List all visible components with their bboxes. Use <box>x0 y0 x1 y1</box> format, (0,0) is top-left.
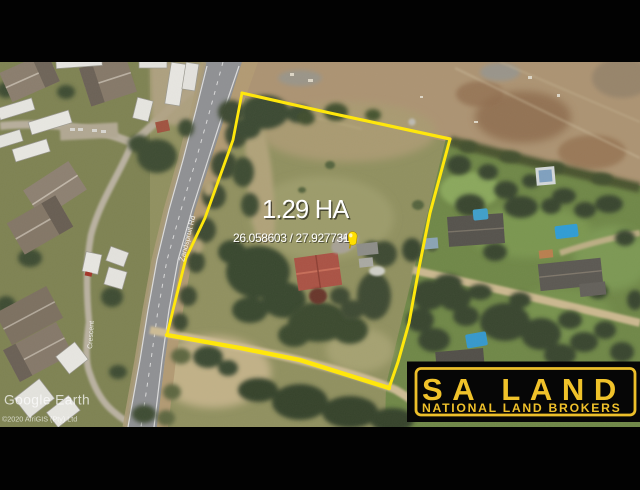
svg-text:Google Earth: Google Earth <box>4 393 90 408</box>
svg-text:©2020 AfriGIS (Pty) Ltd: ©2020 AfriGIS (Pty) Ltd <box>2 415 77 424</box>
svg-text:1.29 HA: 1.29 HA <box>262 196 349 224</box>
svg-text:26.058603 / 27.927731: 26.058603 / 27.927731 <box>233 231 350 245</box>
svg-text:NATIONAL LAND BROKERS: NATIONAL LAND BROKERS <box>422 401 622 415</box>
